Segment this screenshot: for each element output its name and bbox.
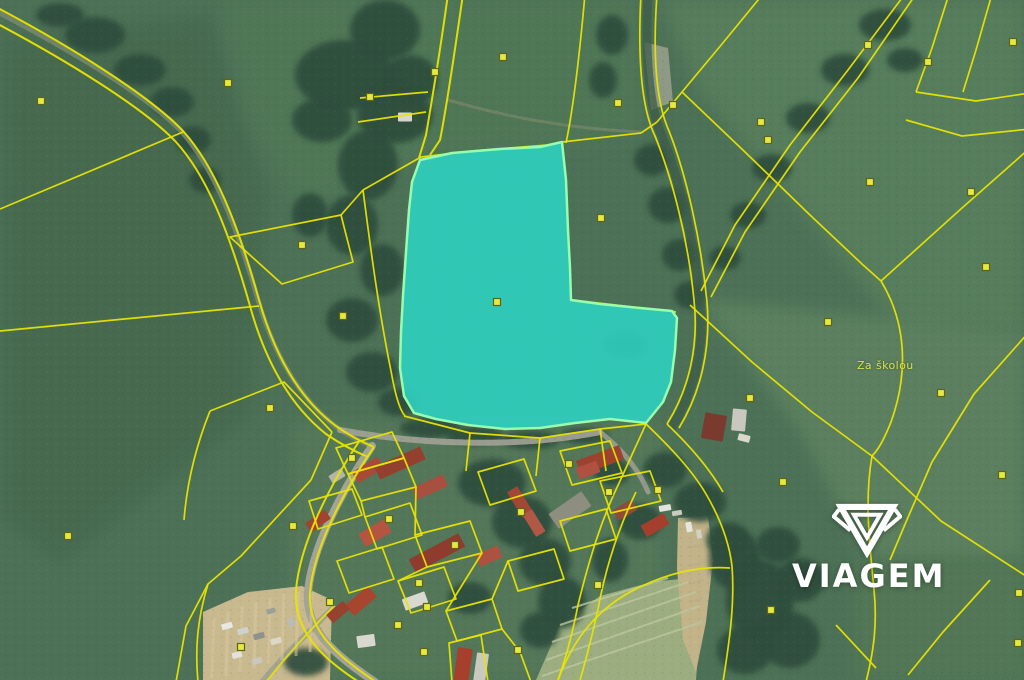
parcel-marker: [416, 580, 423, 587]
parcel-marker: [983, 264, 990, 271]
parcel-marker: [865, 42, 872, 49]
parcel-marker: [452, 542, 459, 549]
parcel-marker: [494, 299, 501, 306]
parcel-marker: [395, 622, 402, 629]
building-roof: [356, 634, 375, 648]
parcel-marker: [606, 489, 613, 496]
parcel-marker: [670, 102, 677, 109]
parcel-marker: [925, 59, 932, 66]
parcel-marker: [566, 461, 573, 468]
parcel-marker: [765, 137, 772, 144]
parcel-marker: [225, 80, 232, 87]
parcel-marker: [867, 179, 874, 186]
parcel-marker: [367, 94, 374, 101]
parcel-marker: [238, 644, 245, 651]
parcel-marker: [518, 509, 525, 516]
parcel-marker: [515, 647, 522, 654]
parcel-marker: [968, 189, 975, 196]
parcel-marker: [938, 390, 945, 397]
parcel-marker: [340, 313, 347, 320]
parcel-marker: [615, 100, 622, 107]
parcel-marker: [349, 455, 356, 462]
parcel-marker: [1010, 39, 1017, 46]
parcel-marker: [421, 649, 428, 656]
map-stage[interactable]: Za školou VIAGEM: [0, 0, 1024, 680]
parcel-marker: [267, 405, 274, 412]
parcel-marker: [1016, 590, 1023, 597]
parcel-marker: [595, 582, 602, 589]
parcel-marker: [758, 119, 765, 126]
parcel-marker: [432, 69, 439, 76]
parcel-marker: [299, 242, 306, 249]
parcel-boundary-line: [415, 487, 416, 535]
parcel-marker: [424, 604, 431, 611]
parcel-marker: [768, 607, 775, 614]
place-label: Za školou: [857, 359, 914, 372]
parcel-marker: [999, 472, 1006, 479]
parcel-marker: [65, 533, 72, 540]
parcel-marker: [780, 479, 787, 486]
parcel-marker: [1015, 640, 1022, 647]
building-roof: [701, 412, 727, 441]
parcel-marker: [386, 516, 393, 523]
parcel-marker: [655, 487, 662, 494]
parcel-marker: [500, 54, 507, 61]
parcel-marker: [747, 395, 754, 402]
viagem-watermark: VIAGEM: [792, 496, 942, 592]
viagem-logo-icon: [832, 496, 902, 558]
parcel-marker: [327, 599, 334, 606]
parcel-marker: [290, 523, 297, 530]
parcel-marker: [38, 98, 45, 105]
building-roof: [731, 408, 747, 431]
parcel-marker: [598, 215, 605, 222]
viagem-logo-text: VIAGEM: [792, 560, 942, 592]
parcel-marker: [825, 319, 832, 326]
